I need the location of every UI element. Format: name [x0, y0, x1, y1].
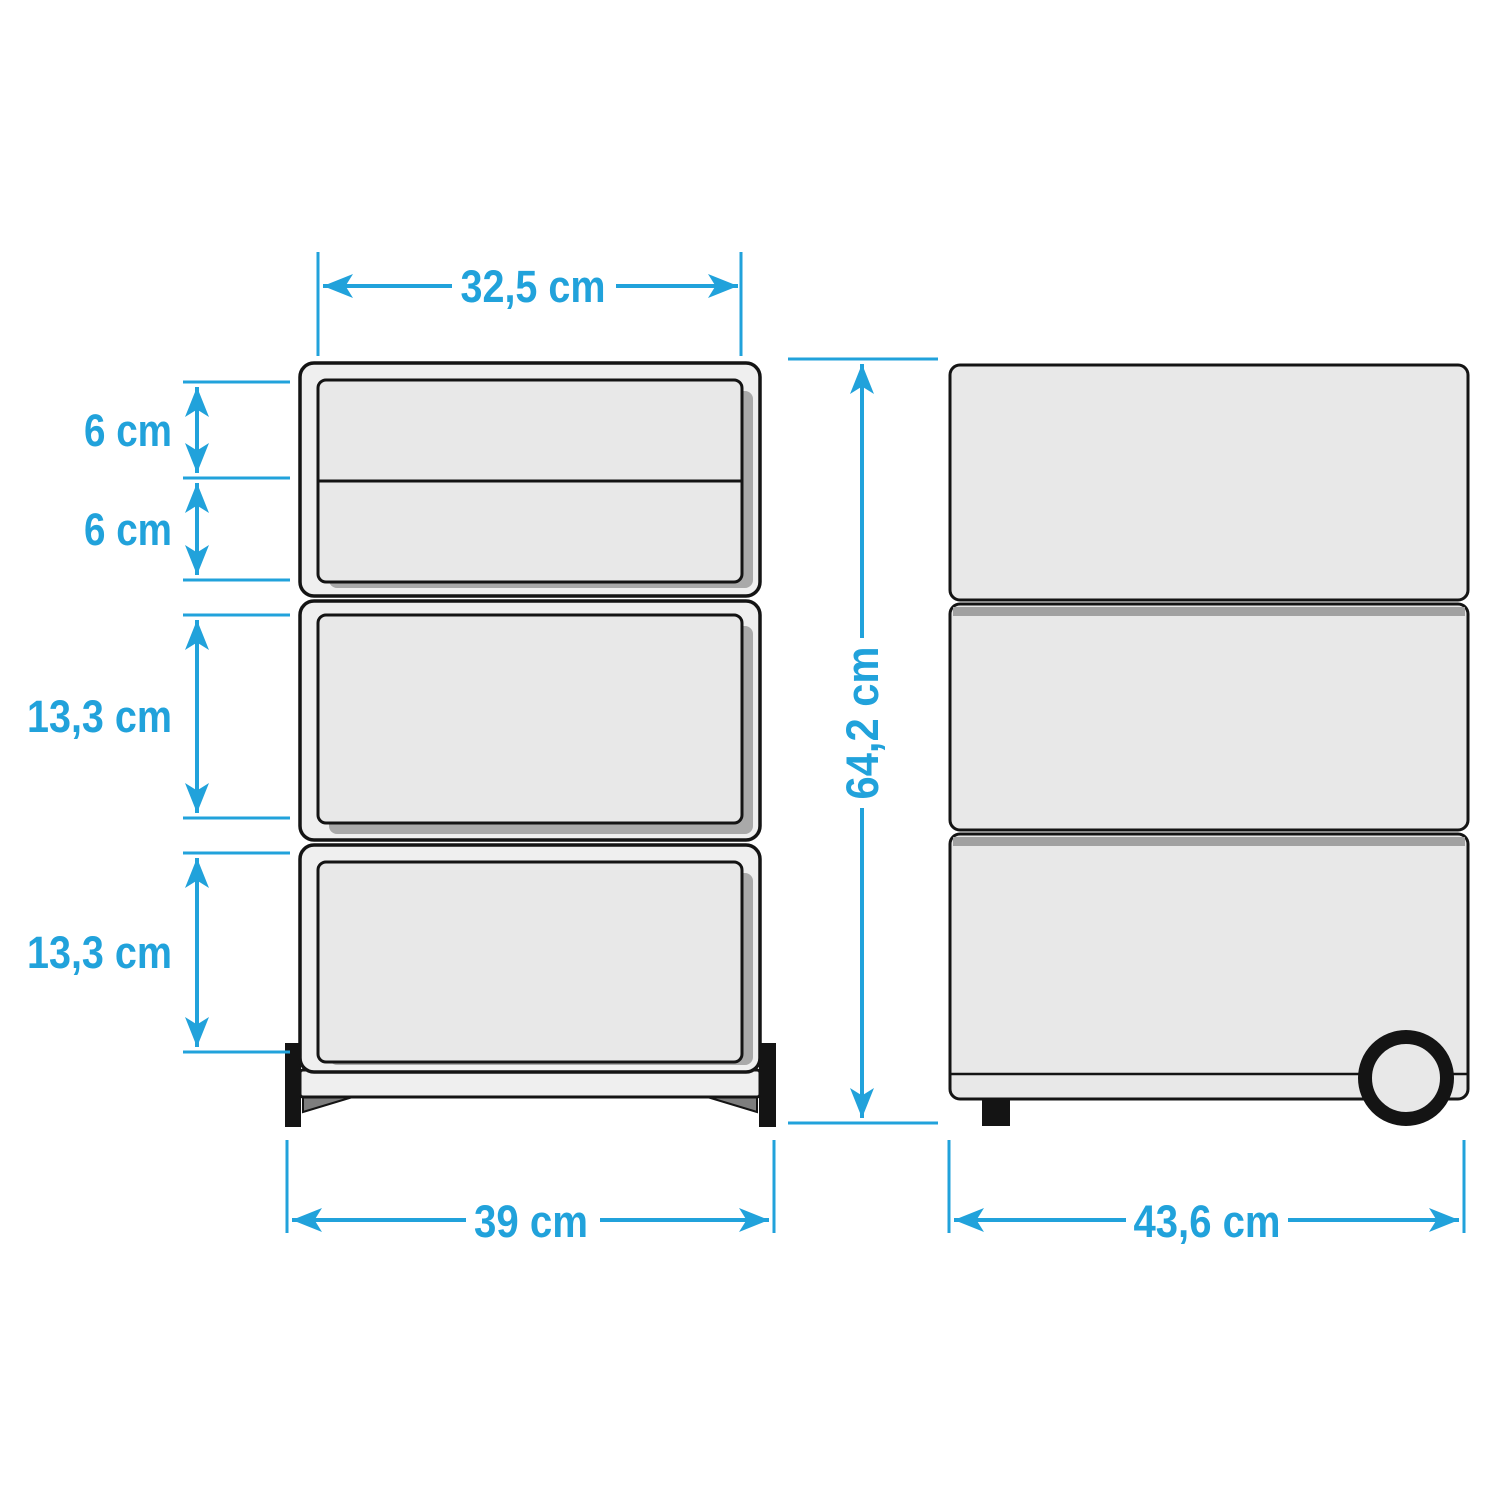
- dim-label-drawer-3: 13,3 cm: [27, 691, 172, 742]
- dim-label-drawer-2: 6 cm: [84, 504, 172, 555]
- dim-label-drawer-4: 13,3 cm: [27, 927, 172, 978]
- side-view: [950, 365, 1468, 1126]
- side-wheel: [1365, 1037, 1447, 1119]
- dim-label-depth: 43,6 cm: [1134, 1196, 1281, 1247]
- front-base-strip: [300, 1070, 760, 1097]
- side-section-top: [950, 365, 1468, 600]
- dim-drawer-2: 6 cm: [84, 483, 290, 580]
- dim-label-drawer-1: 6 cm: [84, 405, 172, 456]
- side-foot: [982, 1099, 1010, 1126]
- front-view: [285, 363, 776, 1127]
- dim-drawer-3: 13,3 cm: [27, 615, 290, 818]
- drawer-front-bottom: [318, 862, 742, 1062]
- dim-total-height: 64,2 cm: [788, 359, 938, 1123]
- dim-base-width: 39 cm: [287, 1140, 774, 1247]
- side-gap-shadow-1: [953, 607, 1465, 616]
- dim-label-base-width: 39 cm: [474, 1196, 588, 1247]
- drawer-front-middle: [318, 615, 742, 823]
- diagram-canvas: 32,5 cm 6 cm 6 cm 13,3 cm 13,3 cm: [0, 0, 1500, 1500]
- dim-depth: 43,6 cm: [949, 1140, 1464, 1247]
- dim-top-width: 32,5 cm: [318, 252, 741, 356]
- dim-label-top-width: 32,5 cm: [461, 261, 606, 312]
- dim-label-total-height: 64,2 cm: [837, 647, 888, 800]
- dimension-diagram: 32,5 cm 6 cm 6 cm 13,3 cm 13,3 cm: [0, 0, 1500, 1500]
- side-section-middle: [950, 604, 1468, 830]
- dim-drawer-1: 6 cm: [84, 382, 290, 478]
- dim-drawer-4: 13,3 cm: [27, 853, 290, 1052]
- side-gap-shadow-2: [953, 837, 1465, 846]
